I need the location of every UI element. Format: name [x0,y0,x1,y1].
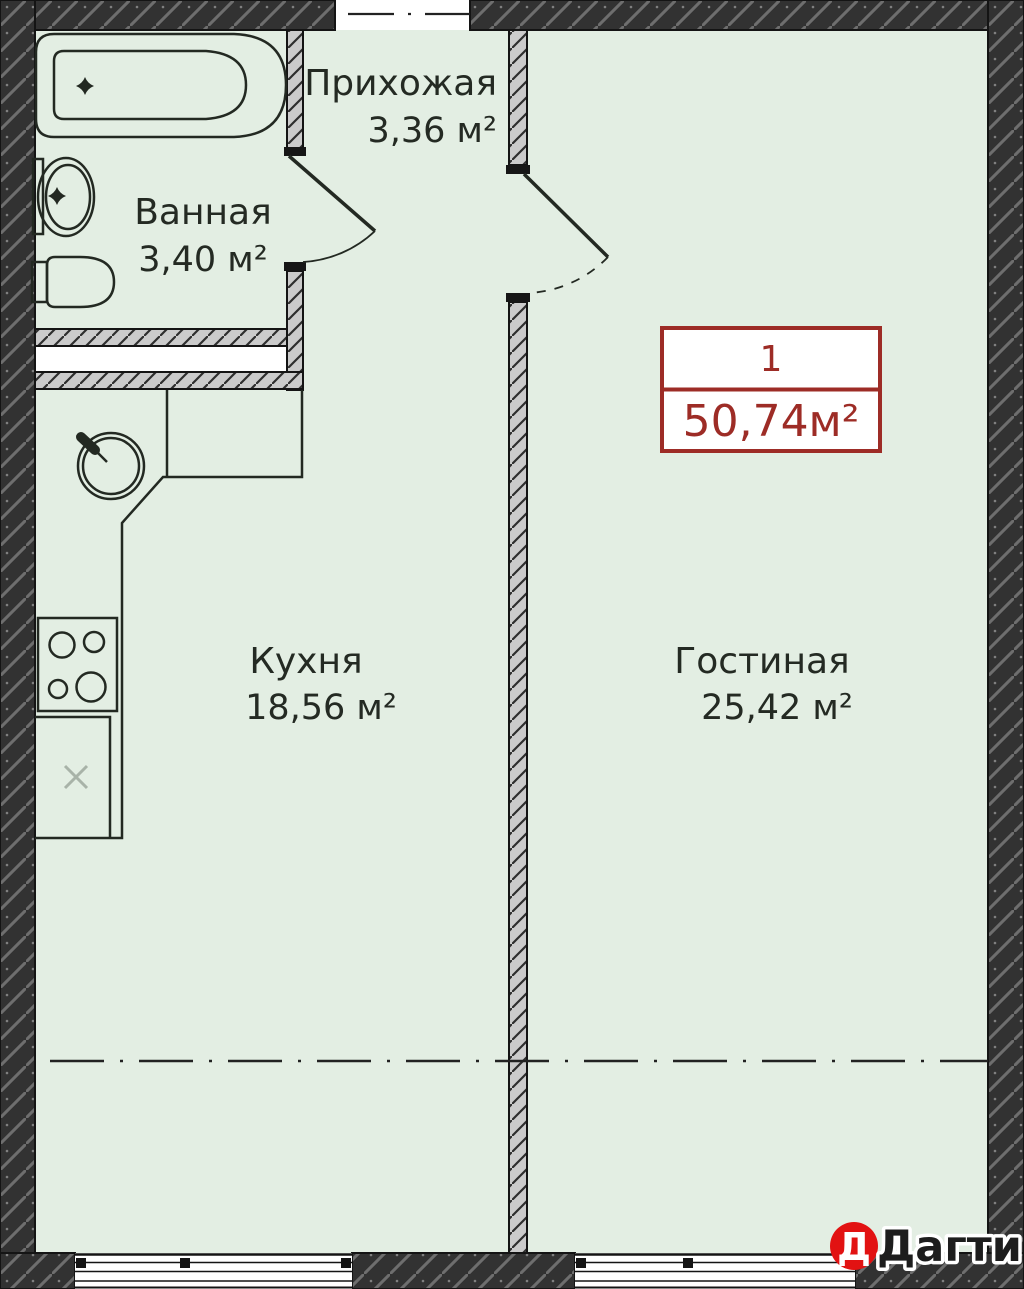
logo-brand-text: Дагти [877,1222,1022,1272]
wall-cap [506,293,530,302]
unit-area-box: 1 50,74м² [662,328,880,451]
watermark-logo: Д Дагти [830,1222,1022,1272]
center-wall [509,302,527,1253]
living-window [575,1253,855,1289]
floor-plan-page: Прихожая 3,36 м² Ванная 3,40 м² Кухня 18… [0,0,1024,1289]
unit-total-area: 50,74м² [683,396,860,447]
kitchen-window [75,1253,352,1289]
bathroom-area: 3,40 м² [138,240,268,280]
wall-cap [506,165,530,174]
bathroom-name: Ванная [134,192,272,233]
top-wall-right [470,0,1024,30]
top-wall-left [0,0,335,30]
hallway-name: Прихожая [304,63,497,104]
floor-plan: Прихожая 3,36 м² Ванная 3,40 м² Кухня 18… [0,0,1024,1289]
wall-cap [284,262,306,271]
unit-number: 1 [760,339,783,380]
duct-gap [35,346,287,372]
right-wall [988,0,1024,1289]
bathroom-wall-upper [287,30,303,148]
left-wall [0,0,35,1289]
bottom-wall-middle [352,1253,575,1289]
bottom-wall-left [0,1253,75,1289]
center-wall-column [509,30,527,165]
kitchen-name: Кухня [249,641,362,682]
wall-cap [284,147,306,156]
duct-wall-bottom [35,372,303,389]
logo-initial: Д [837,1225,871,1269]
living-name: Гостиная [674,641,849,682]
living-area: 25,42 м² [701,688,853,728]
kitchen-area: 18,56 м² [245,688,397,728]
duct-wall-top [35,329,287,346]
hallway-area: 3,36 м² [368,111,498,151]
